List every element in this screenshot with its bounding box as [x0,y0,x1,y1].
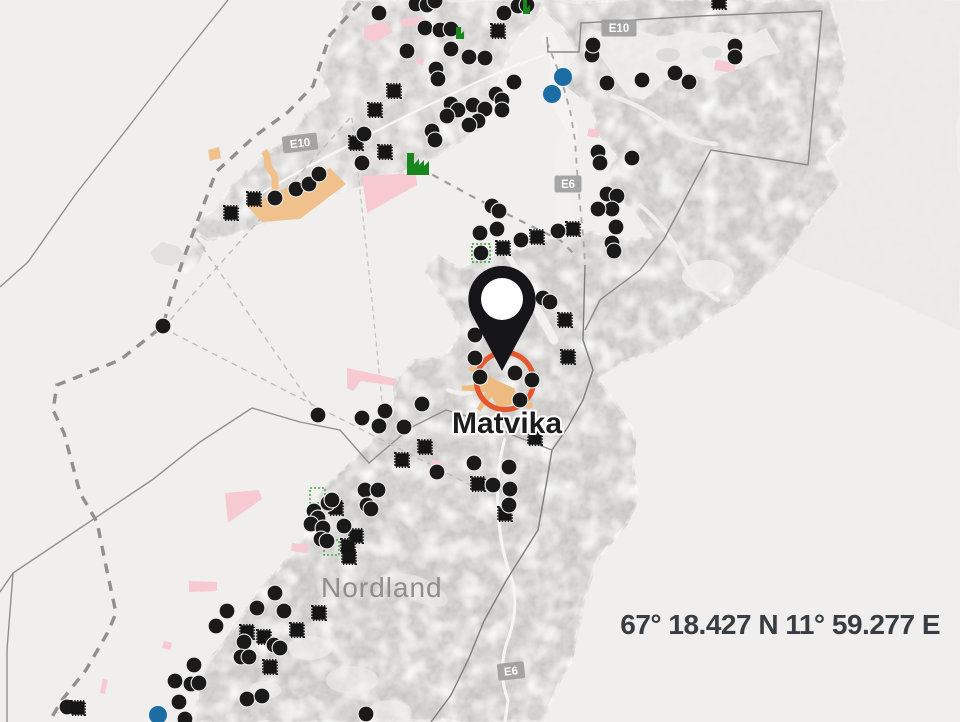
svg-text:E6: E6 [561,179,575,191]
svg-text:E6: E6 [503,665,518,678]
svg-text:67° 18.427 N 11° 59.277 E: 67° 18.427 N 11° 59.277 E [620,609,940,640]
svg-text:Nordland: Nordland [321,572,443,603]
svg-text:E10: E10 [289,137,311,151]
svg-text:E10: E10 [609,23,629,35]
svg-text:Matvika: Matvika [452,407,562,440]
